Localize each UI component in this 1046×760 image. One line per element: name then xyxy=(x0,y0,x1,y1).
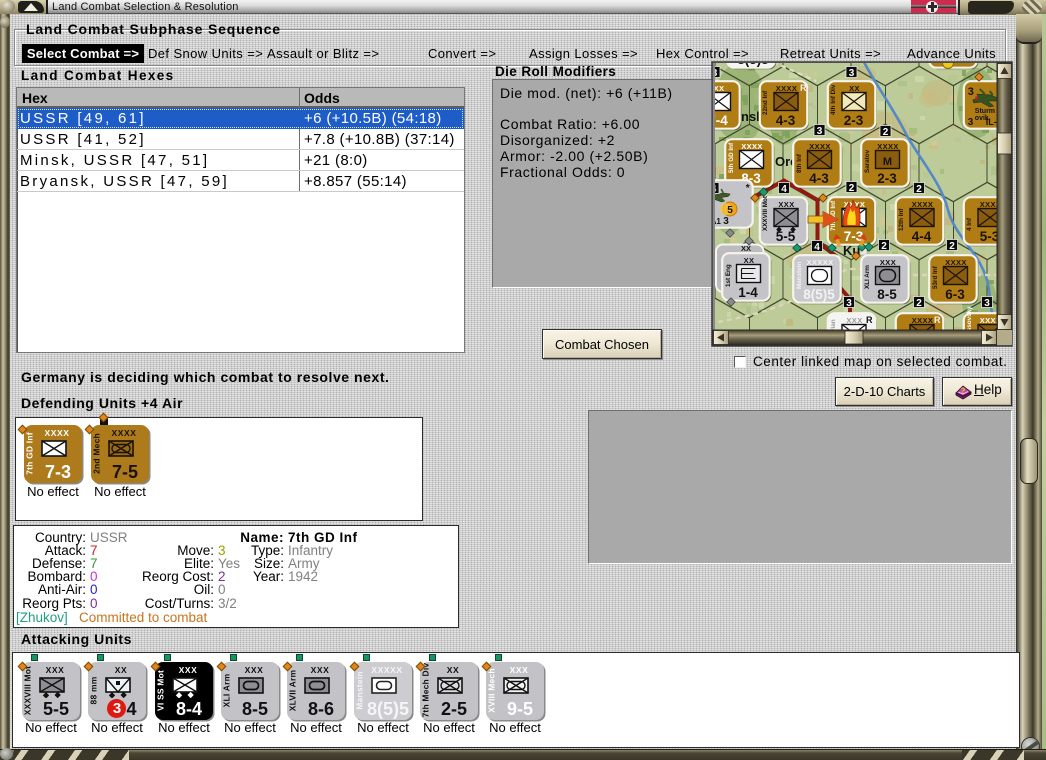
svg-text:8-5: 8-5 xyxy=(877,287,897,302)
svg-text:XXX: XXX xyxy=(846,316,862,325)
svg-text:XXX: XXX xyxy=(880,258,896,267)
svg-text:XXXX: XXXX xyxy=(741,142,763,151)
svg-text:5th GD Inf: 5th GD Inf xyxy=(728,142,735,173)
svg-text:4th Inf Div: 4th Inf Div xyxy=(830,84,837,115)
svg-text:1-4: 1-4 xyxy=(738,285,758,300)
svg-text:3: 3 xyxy=(849,68,855,79)
svg-text:7-4: 7-4 xyxy=(708,113,728,128)
svg-text:2: 2 xyxy=(916,184,922,195)
svg-text:XXXX: XXXX xyxy=(877,142,899,151)
svg-text:XXXXX: XXXXX xyxy=(806,258,833,267)
svg-text:3: 3 xyxy=(984,298,990,309)
svg-text:4: 4 xyxy=(814,242,820,253)
svg-text:5-5: 5-5 xyxy=(776,229,796,244)
svg-text:4-4: 4-4 xyxy=(912,229,932,244)
svg-text:nsl: nsl xyxy=(741,109,760,124)
svg-text:2: 2 xyxy=(916,298,922,309)
svg-text:XX: XX xyxy=(849,84,860,93)
svg-text:4: 4 xyxy=(781,184,787,195)
svg-text:4-3: 4-3 xyxy=(776,113,796,128)
svg-text:XXXX: XXXX xyxy=(945,258,967,267)
svg-text:2: 2 xyxy=(881,241,887,252)
svg-text:XXXVIII Mot: XXXVIII Mot xyxy=(762,195,769,231)
svg-text:XX: XX xyxy=(744,256,755,265)
svg-text:2-3: 2-3 xyxy=(844,113,864,128)
svg-text:8th Inf: 8th Inf xyxy=(796,153,803,173)
svg-text:R: R xyxy=(800,83,807,93)
svg-text:1st Eng: 1st Eng xyxy=(725,264,732,287)
svg-text:6-3: 6-3 xyxy=(945,287,965,302)
svg-text:3: 3 xyxy=(723,216,729,227)
svg-text:3: 3 xyxy=(968,117,974,128)
svg-text:22nd Inf: 22nd Inf xyxy=(762,90,769,115)
svg-text:R: R xyxy=(866,315,873,325)
svg-text:*: * xyxy=(746,183,750,194)
svg-text:3: 3 xyxy=(846,298,852,309)
svg-text:Saratov: Saratov xyxy=(864,149,871,173)
svg-text:53rd Inf: 53rd Inf xyxy=(932,265,939,289)
svg-text:XXX: XXX xyxy=(778,200,794,209)
svg-text:XXXX: XXXX xyxy=(809,142,831,151)
svg-text:R: R xyxy=(934,315,941,325)
svg-text:2-3: 2-3 xyxy=(877,171,897,186)
svg-text:8(5)5: 8(5)5 xyxy=(737,52,769,67)
svg-text:XX: XX xyxy=(714,84,725,93)
svg-text:Manstein: Manstein xyxy=(796,262,803,289)
svg-text:XXXX: XXXX xyxy=(912,316,934,325)
svg-text:XXXX: XXXX xyxy=(912,200,934,209)
svg-text:2: 2 xyxy=(883,127,889,138)
svg-text:8(5)5: 8(5)5 xyxy=(803,287,835,302)
svg-text:2: 2 xyxy=(949,241,955,252)
svg-text:4-3: 4-3 xyxy=(809,171,829,186)
svg-text:M: M xyxy=(883,156,892,168)
svg-text:Sturm: Sturm xyxy=(975,108,995,115)
svg-text:3: 3 xyxy=(817,126,823,137)
svg-text:XLI Arm: XLI Arm xyxy=(864,265,871,289)
svg-text:XX: XX xyxy=(741,244,751,253)
svg-text:5: 5 xyxy=(727,205,733,216)
svg-text:12th Inf: 12th Inf xyxy=(898,208,905,231)
svg-text:XXXX: XXXX xyxy=(776,84,798,93)
svg-text:2: 2 xyxy=(849,183,855,194)
svg-text:3: 3 xyxy=(968,86,974,98)
svg-text:4 Inf: 4 Inf xyxy=(966,217,973,231)
